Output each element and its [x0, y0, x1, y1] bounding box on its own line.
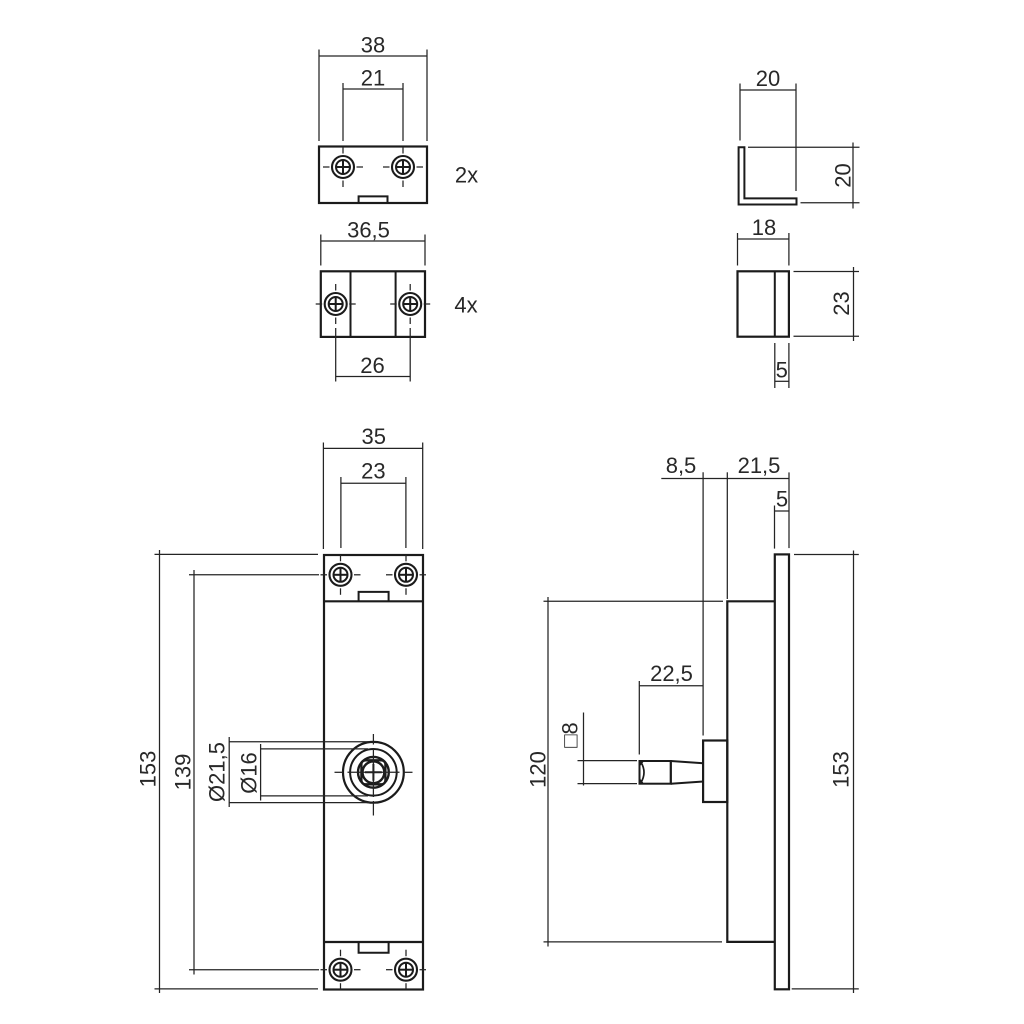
svg-text:21,5: 21,5	[738, 453, 781, 478]
svg-text:139: 139	[171, 754, 196, 791]
svg-text:Ø16: Ø16	[237, 752, 262, 794]
svg-text:26: 26	[360, 353, 384, 378]
svg-text:5: 5	[776, 487, 788, 512]
svg-text:23: 23	[361, 459, 385, 484]
svg-text:Ø21,5: Ø21,5	[205, 742, 230, 802]
svg-text:38: 38	[361, 33, 385, 58]
svg-text:153: 153	[136, 751, 161, 788]
svg-text:20: 20	[831, 163, 856, 187]
svg-text:18: 18	[752, 215, 776, 240]
svg-text:120: 120	[526, 751, 551, 788]
svg-text:5: 5	[776, 357, 788, 382]
svg-text:22,5: 22,5	[650, 661, 693, 686]
svg-text:23: 23	[829, 291, 854, 315]
svg-text:□8: □8	[558, 722, 583, 748]
svg-text:2x: 2x	[455, 163, 478, 188]
svg-text:35: 35	[362, 424, 386, 449]
svg-text:20: 20	[756, 66, 780, 91]
svg-text:153: 153	[829, 751, 854, 788]
svg-text:36,5: 36,5	[347, 218, 390, 243]
svg-text:21: 21	[361, 66, 385, 91]
svg-text:8,5: 8,5	[666, 453, 697, 478]
svg-text:4x: 4x	[454, 293, 477, 318]
